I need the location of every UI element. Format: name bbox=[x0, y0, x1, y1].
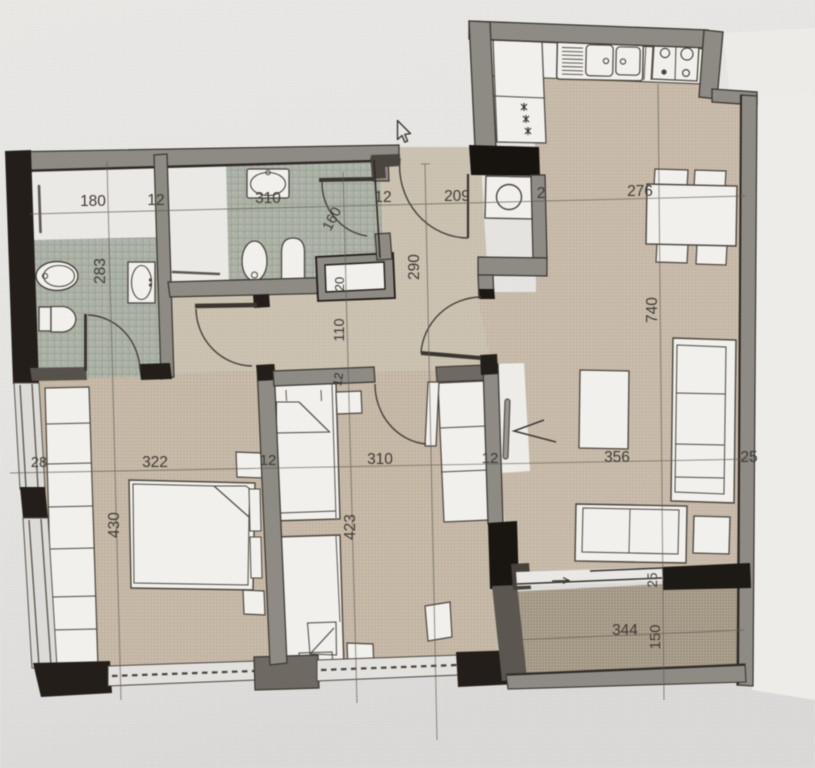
svg-text:28: 28 bbox=[31, 455, 47, 471]
svg-text:430: 430 bbox=[106, 512, 123, 538]
svg-text:209: 209 bbox=[444, 188, 470, 205]
svg-text:740: 740 bbox=[644, 297, 661, 323]
svg-text:310: 310 bbox=[255, 190, 281, 207]
svg-text:12: 12 bbox=[330, 371, 346, 387]
svg-text:322: 322 bbox=[142, 454, 168, 471]
svg-text:25: 25 bbox=[645, 572, 660, 587]
svg-text:290: 290 bbox=[406, 254, 423, 280]
svg-text:110: 110 bbox=[332, 318, 348, 341]
svg-text:344: 344 bbox=[612, 622, 638, 639]
svg-text:356: 356 bbox=[604, 449, 630, 466]
svg-text:310: 310 bbox=[367, 451, 393, 468]
svg-text:150: 150 bbox=[647, 624, 664, 649]
svg-text:12: 12 bbox=[482, 450, 499, 467]
svg-text:276: 276 bbox=[627, 183, 653, 200]
svg-text:20: 20 bbox=[332, 277, 347, 291]
svg-text:423: 423 bbox=[342, 514, 359, 540]
svg-text:12: 12 bbox=[147, 192, 164, 209]
svg-text:180: 180 bbox=[80, 193, 106, 210]
svg-text:12: 12 bbox=[260, 452, 277, 469]
svg-text:2: 2 bbox=[537, 185, 546, 202]
svg-text:283: 283 bbox=[92, 258, 109, 284]
svg-text:25: 25 bbox=[740, 449, 757, 466]
svg-text:12: 12 bbox=[374, 189, 391, 206]
